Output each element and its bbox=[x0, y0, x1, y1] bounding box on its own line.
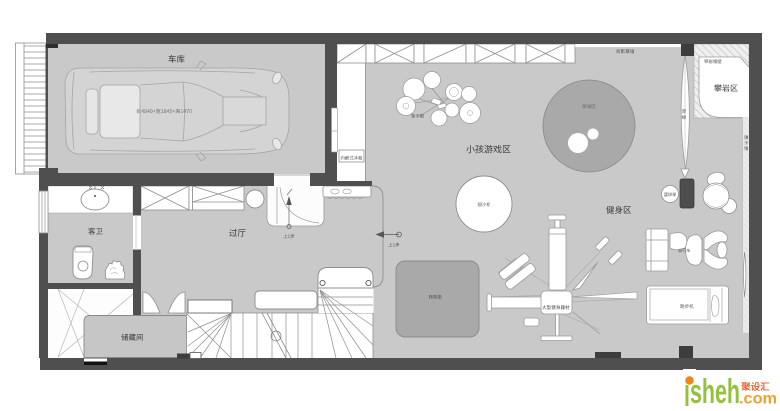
svg-text:.com: .com bbox=[739, 391, 777, 407]
